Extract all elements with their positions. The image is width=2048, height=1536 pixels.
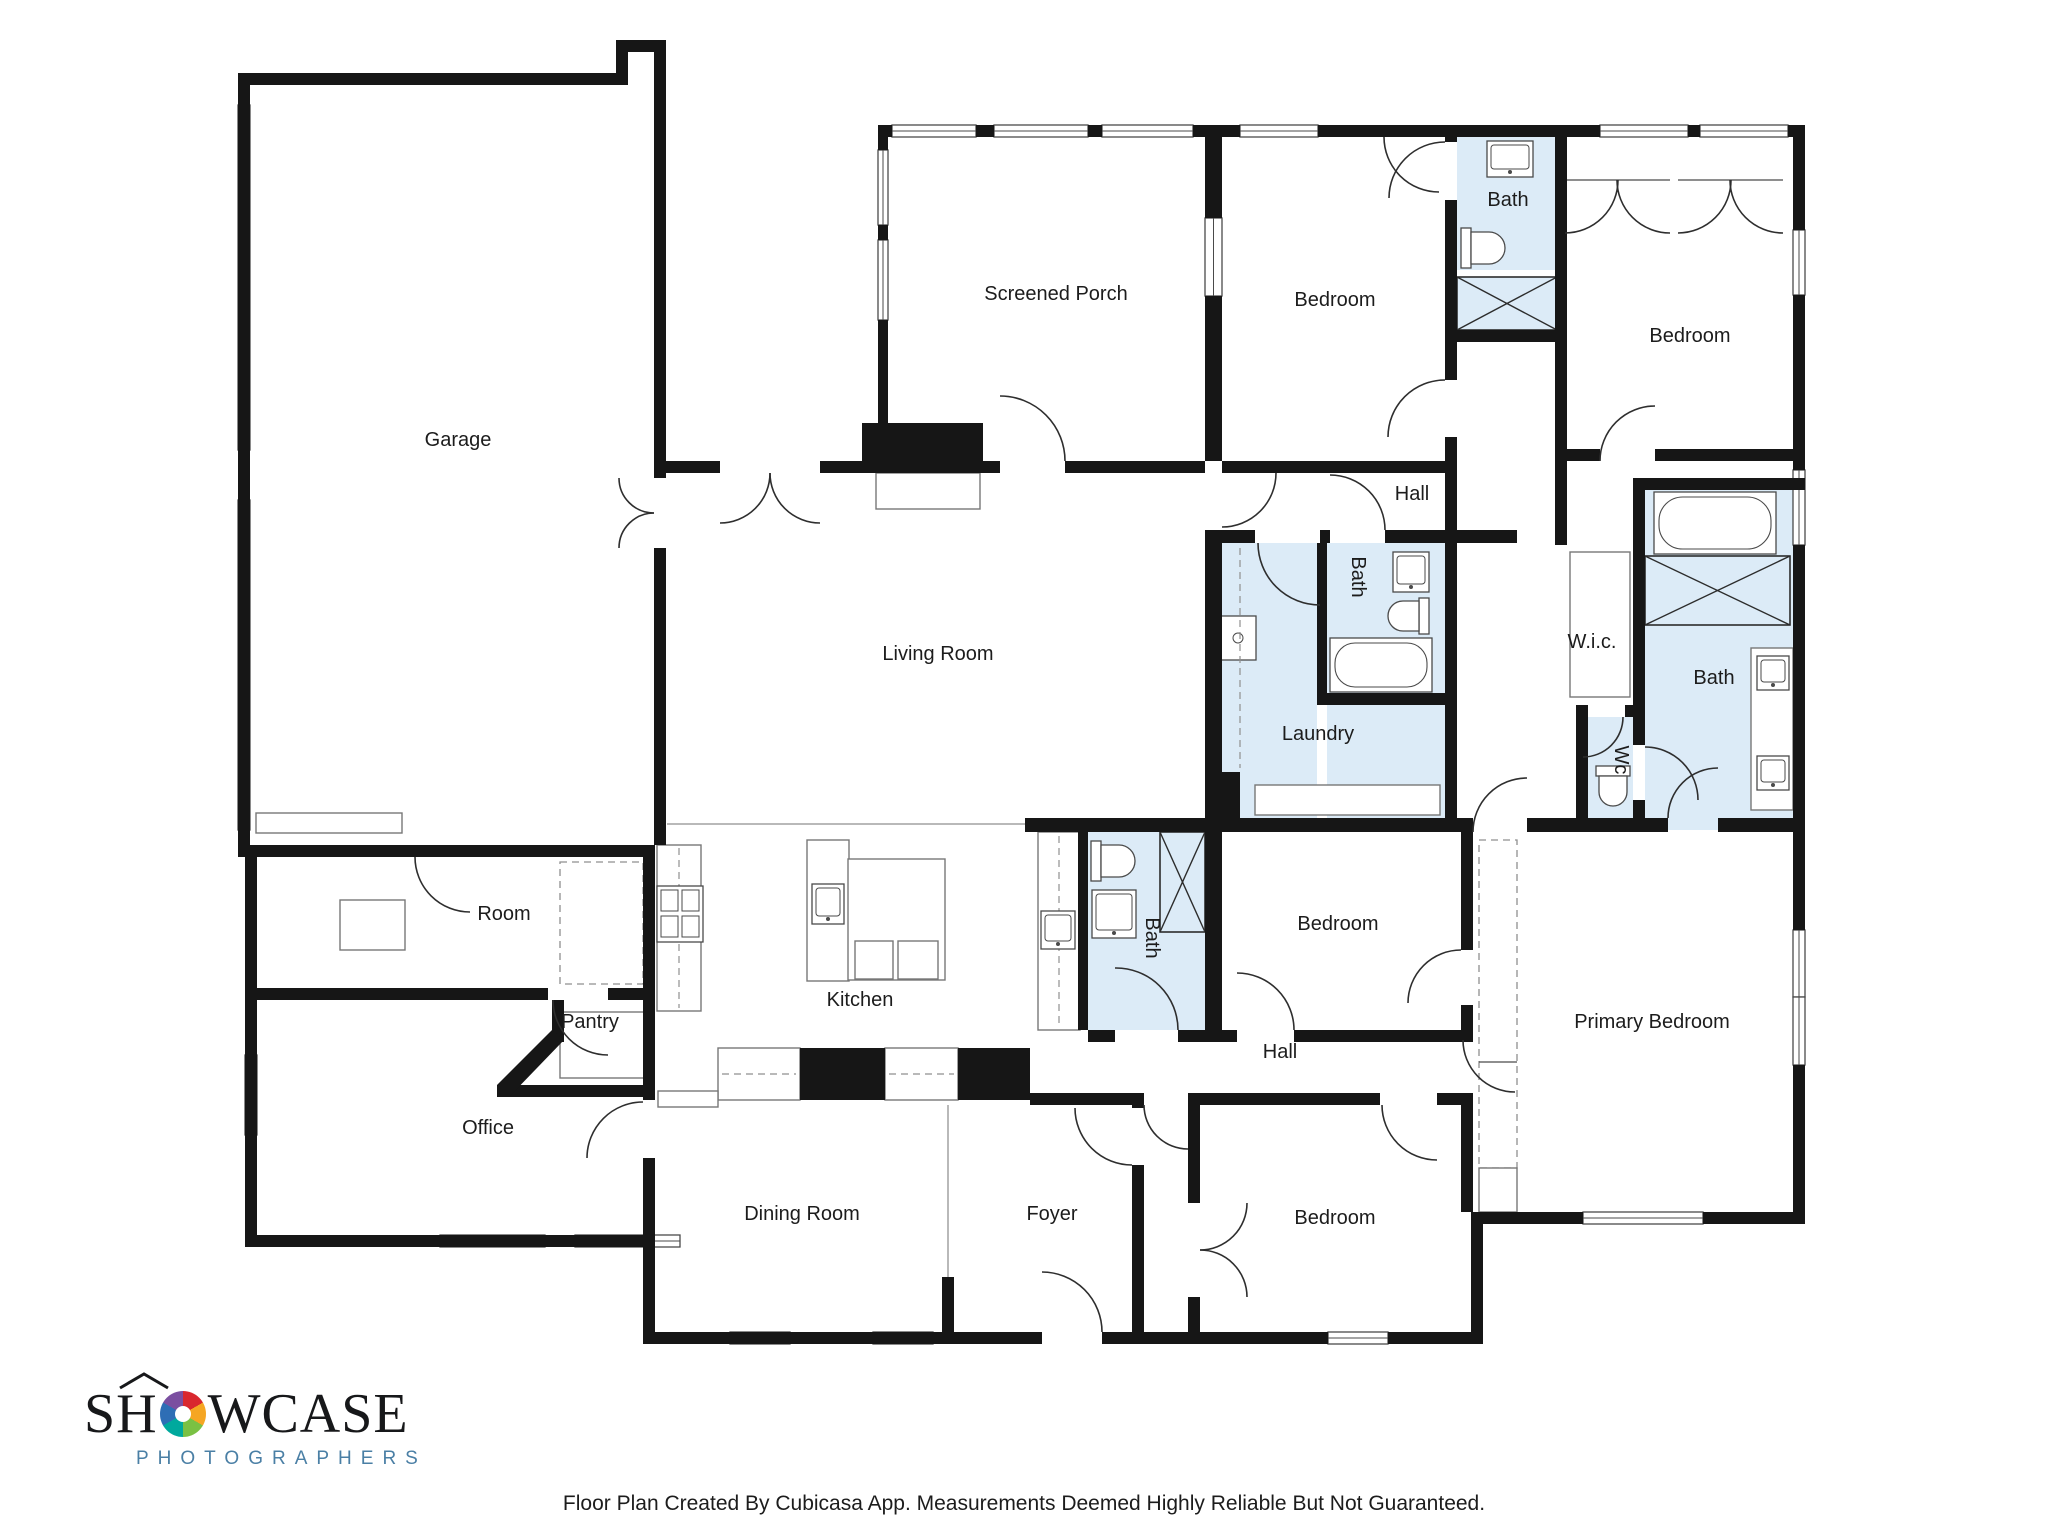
logo-text-suffix: WCASE [208, 1386, 409, 1442]
door-swing [1389, 142, 1445, 198]
fixture-rect [855, 941, 893, 979]
wall [1193, 125, 1240, 137]
wall [1793, 545, 1805, 930]
sink-drain [1112, 931, 1116, 935]
room-label-hall-top: Hall [1395, 483, 1429, 505]
wall [643, 857, 655, 1000]
room-label-hall-bottom: Hall [1263, 1041, 1297, 1063]
logo-subtitle: PHOTOGRAPHERS [136, 1448, 504, 1470]
toilet-bowl [1471, 232, 1505, 264]
door-swing [1042, 1272, 1102, 1332]
door-swing [1565, 180, 1618, 233]
wall [1449, 330, 1567, 342]
wall [1445, 200, 1457, 380]
sink-drain [1409, 585, 1413, 589]
wall [1132, 1165, 1144, 1344]
logo-text-prefix: SH [84, 1386, 158, 1442]
wall [654, 548, 666, 845]
door-swing [1388, 380, 1445, 437]
fixture-rect [1255, 785, 1440, 815]
door-swing [1200, 1203, 1247, 1250]
door-swing [1463, 1040, 1515, 1092]
wall [1317, 543, 1327, 693]
room-label-room: Room [477, 903, 530, 925]
wall [1025, 818, 1473, 832]
wall [1065, 461, 1205, 473]
showcase-logo: SH WCASE PHOTOGRAPHERS [84, 1386, 504, 1470]
sink-drain [1771, 683, 1775, 687]
room-label-bath-top: Bath [1487, 189, 1528, 211]
wall [1294, 1030, 1461, 1042]
wall [878, 125, 892, 137]
fixture-rect [256, 813, 402, 833]
floor-plan-page: GarageScreened PorchBedroomBathBedroomHa… [0, 0, 2048, 1536]
door-swing [619, 513, 654, 548]
door-swing [1144, 1105, 1188, 1149]
wall [1205, 296, 1222, 461]
wall [963, 1332, 1042, 1344]
sink-drain [1771, 783, 1775, 787]
room-label-garage: Garage [425, 429, 492, 451]
wall [976, 125, 994, 137]
wall [1703, 1212, 1805, 1224]
wall [1655, 449, 1805, 461]
wall [643, 1158, 655, 1344]
wall [958, 1048, 1030, 1100]
wall [1205, 772, 1240, 832]
door-swing [1473, 778, 1527, 832]
wall [1132, 1093, 1144, 1108]
wall [1188, 1093, 1380, 1105]
wall [1267, 461, 1457, 473]
floor-plan-canvas: GarageScreened PorchBedroomBathBedroomHa… [0, 0, 2048, 1536]
logo-house-roof-icon [118, 1372, 170, 1390]
room-label-kitchen: Kitchen [827, 989, 894, 1011]
wall [1088, 125, 1102, 137]
room-label-bath-2: Bath [1347, 556, 1369, 597]
door-swing [415, 857, 470, 912]
camera-aperture-icon [160, 1391, 206, 1437]
bath-floor-areas [1088, 137, 1793, 1030]
wall [238, 85, 250, 857]
fixture-rect [1570, 552, 1630, 697]
room-label-screened-porch: Screened Porch [984, 283, 1127, 305]
wall [1222, 461, 1267, 473]
wall [1461, 1093, 1473, 1212]
room-label-pantry: Pantry [561, 1011, 619, 1033]
wall [1320, 530, 1330, 543]
door-swing [1200, 1250, 1247, 1297]
toilet-bowl [1599, 776, 1627, 806]
wall [1555, 137, 1567, 461]
fixture-rect [340, 900, 405, 950]
wall [1633, 478, 1645, 745]
door-swing [1600, 406, 1655, 461]
wall [1188, 1105, 1200, 1203]
room-label-bedroom-top: Bedroom [1294, 289, 1375, 311]
wall [1205, 832, 1222, 1030]
door-swing [1000, 396, 1065, 461]
toilet-bowl [1101, 845, 1135, 877]
wall [608, 988, 655, 1000]
room-label-wc: Wc [1610, 746, 1632, 775]
room-label-primary-bedroom: Primary Bedroom [1574, 1011, 1730, 1033]
door-swing [1222, 473, 1276, 527]
room-label-living-room: Living Room [882, 643, 993, 665]
wall [1471, 1212, 1483, 1344]
wall [1178, 1030, 1237, 1042]
wall [1457, 530, 1517, 543]
room-label-bedroom-mid: Bedroom [1297, 913, 1378, 935]
wardrobe-dashed [560, 862, 643, 984]
wall [657, 461, 720, 473]
wall [1461, 832, 1473, 950]
disclaimer-text: Floor Plan Created By Cubicasa App. Meas… [0, 1492, 2048, 1516]
door-swing [1408, 950, 1461, 1003]
room-label-wic: W.i.c. [1568, 631, 1617, 653]
wall [643, 1332, 963, 1344]
wall [1576, 705, 1588, 832]
wall [1793, 1065, 1805, 1224]
wall [1471, 1212, 1583, 1224]
door-swing [1730, 180, 1783, 233]
room-label-dining-room: Dining Room [744, 1203, 860, 1225]
sink-drain [1056, 942, 1060, 946]
door-swing [619, 478, 654, 513]
door-swing [1384, 137, 1439, 192]
door-swing [1237, 973, 1294, 1030]
wall [862, 423, 983, 473]
wall [1317, 693, 1457, 705]
wall [1793, 125, 1805, 230]
room-label-office: Office [462, 1117, 514, 1139]
toilet-tank [1419, 598, 1429, 634]
wall [878, 225, 888, 240]
sink-drain [826, 917, 830, 921]
wall [238, 845, 655, 857]
wall [1078, 832, 1088, 1030]
wall [1788, 125, 1805, 137]
bathtub [1330, 638, 1432, 692]
wall [245, 988, 548, 1000]
fixture-rect [1479, 1168, 1517, 1212]
wall [1555, 461, 1567, 545]
wall [1188, 1297, 1200, 1344]
door-swing [1617, 180, 1670, 233]
wall [1793, 295, 1805, 470]
wall [1437, 1093, 1473, 1105]
wall [1718, 818, 1805, 832]
toilet-tank [1461, 228, 1471, 268]
wall [820, 461, 868, 473]
sink-drain [1508, 170, 1512, 174]
wall [1527, 818, 1668, 832]
wall [643, 1000, 655, 1093]
wall [1449, 125, 1600, 137]
room-label-bedroom-bottom: Bedroom [1294, 1207, 1375, 1229]
wall [643, 1085, 655, 1100]
room-label-bath-small: Bath [1141, 917, 1163, 958]
door-swing [1075, 1108, 1132, 1165]
wall [1205, 137, 1222, 218]
wall [1445, 461, 1457, 832]
wall [1445, 137, 1457, 142]
wall [497, 1085, 655, 1097]
wall [245, 857, 257, 1247]
wall [654, 40, 666, 478]
room-label-laundry: Laundry [1282, 723, 1354, 745]
wall [238, 73, 628, 85]
door-swing [770, 473, 820, 523]
room-label-foyer: Foyer [1026, 1203, 1077, 1225]
wall [1688, 125, 1700, 137]
wall [800, 1048, 885, 1100]
washer-icon [1220, 616, 1256, 660]
door-swing [587, 1102, 643, 1158]
wall [878, 137, 888, 150]
wall [1318, 125, 1449, 137]
wall [245, 1235, 655, 1247]
fixture-rect [658, 1091, 718, 1107]
stove-icon [657, 886, 703, 942]
wall [1625, 705, 1633, 717]
floor-plan: GarageScreened PorchBedroomBathBedroomHa… [0, 0, 2048, 1536]
door-swing [1382, 1105, 1437, 1160]
wall [1633, 478, 1805, 490]
wall [1461, 1005, 1473, 1042]
bathtub [1654, 492, 1776, 554]
wardrobe-dashed [1479, 840, 1517, 1168]
fixture-rect [898, 941, 938, 979]
door-swing [720, 473, 770, 523]
toilet-tank [1091, 841, 1101, 881]
door-swing [1330, 475, 1385, 530]
wall [1222, 530, 1255, 543]
wall [942, 1277, 954, 1344]
door-swing [1678, 180, 1731, 233]
toilet-bowl [1388, 601, 1419, 631]
room-label-bedroom-right: Bedroom [1649, 325, 1730, 347]
wall [1088, 1030, 1115, 1042]
fixture-rect [876, 473, 980, 509]
wall [878, 320, 888, 423]
wall [1030, 1093, 1132, 1105]
wall [1445, 437, 1457, 461]
room-label-bath-primary: Bath [1693, 667, 1734, 689]
sink-icon [1092, 890, 1136, 938]
wall [1388, 1332, 1483, 1344]
